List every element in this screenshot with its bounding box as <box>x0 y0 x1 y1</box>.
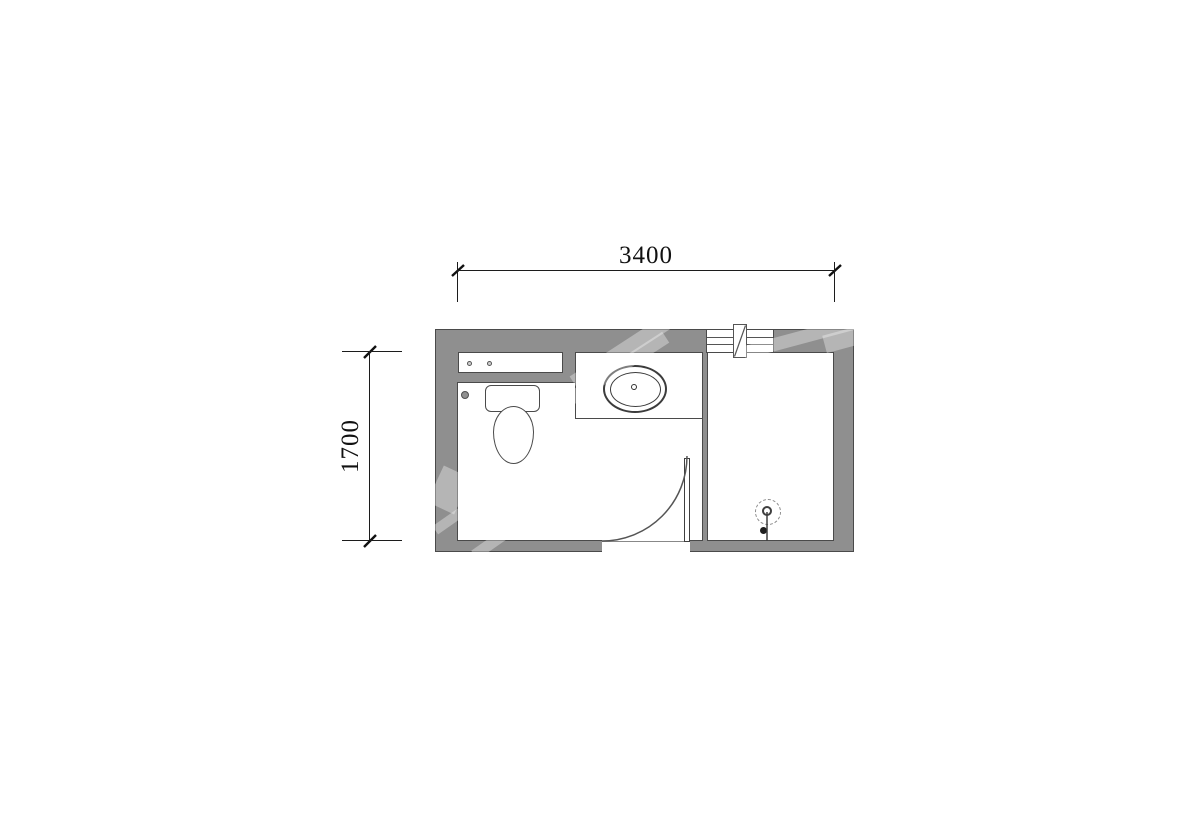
shower-mixer-dot <box>760 527 767 534</box>
door-threshold-line <box>602 541 690 542</box>
dimension-label-width: 3400 <box>596 243 696 268</box>
shelf-niche <box>458 352 563 373</box>
dim-tick <box>364 535 376 547</box>
door-opening <box>602 540 690 554</box>
dimension-line-left <box>369 352 370 541</box>
extension-line <box>342 540 402 541</box>
dimension-line-top <box>458 270 835 271</box>
extension-line <box>342 351 402 352</box>
extension-line <box>457 262 458 302</box>
sink-drain <box>631 384 637 390</box>
window-sash <box>733 324 747 358</box>
shower-head-center <box>762 506 772 516</box>
shelf-mount-dot <box>487 361 492 366</box>
door-leaf <box>684 458 690 542</box>
extension-line <box>834 262 835 302</box>
dimension-label-height: 1700 <box>338 396 364 496</box>
water-supply-valve <box>461 391 469 399</box>
floor-plan-canvas: 3400 1700 <box>0 0 1198 831</box>
shelf-mount-dot <box>467 361 472 366</box>
dim-tick <box>364 346 376 358</box>
